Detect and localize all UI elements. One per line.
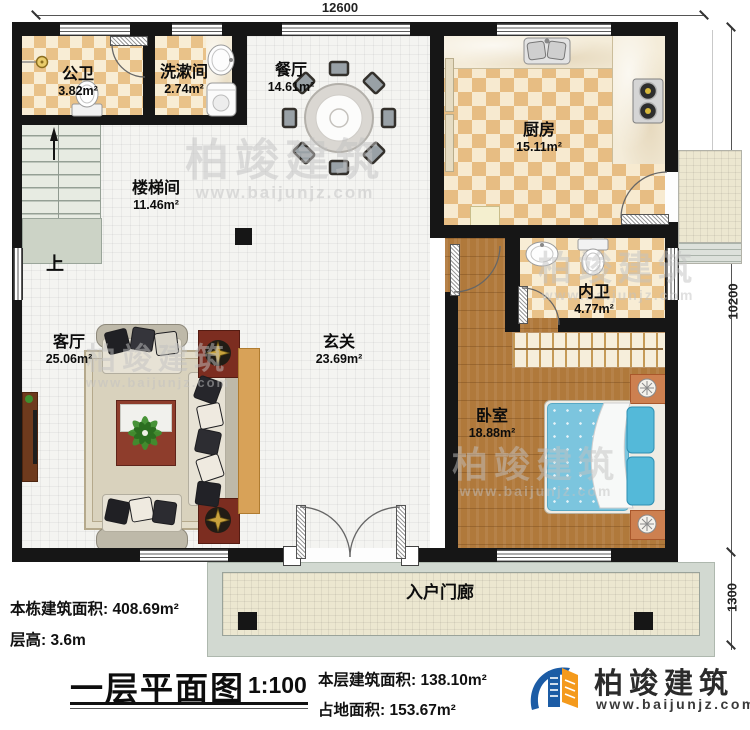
kitchen-door-leaf bbox=[621, 214, 669, 225]
side-steps bbox=[678, 242, 742, 264]
kitchen-tall-unit bbox=[445, 114, 454, 172]
window bbox=[666, 248, 679, 300]
ensuite-door-leaf bbox=[518, 286, 528, 324]
window bbox=[13, 248, 23, 300]
stair-stringer bbox=[58, 122, 59, 218]
drawing-scale: 1:100 bbox=[248, 672, 307, 699]
wall-segment bbox=[430, 36, 444, 238]
nightstand-top bbox=[630, 374, 666, 404]
structural-column bbox=[235, 228, 252, 245]
room-label-porch: 入户门廊 bbox=[392, 583, 488, 603]
porch-column bbox=[634, 612, 653, 630]
window bbox=[60, 23, 130, 36]
dim-line-right bbox=[731, 28, 732, 650]
site-boundary-line bbox=[712, 30, 713, 150]
side-table-top bbox=[198, 330, 240, 378]
window bbox=[497, 549, 611, 562]
wall-segment bbox=[665, 22, 678, 172]
porch-floor bbox=[222, 572, 700, 636]
entry-door-leaf bbox=[296, 505, 306, 559]
company-logo-icon bbox=[526, 658, 590, 718]
wall-segment bbox=[12, 115, 247, 125]
coffee-table-glass bbox=[120, 404, 172, 432]
company-website: www.baijunjz.com bbox=[596, 696, 750, 712]
window bbox=[282, 23, 410, 36]
wall-segment bbox=[232, 36, 247, 125]
nightstand-bottom bbox=[630, 510, 666, 540]
floor-area: 本层建筑面积: 138.10m² bbox=[318, 668, 487, 690]
dim-height-right: 10200 bbox=[726, 275, 741, 329]
staircase bbox=[22, 122, 101, 218]
side-platform bbox=[678, 150, 742, 244]
title-underline-thin bbox=[70, 708, 308, 709]
room-label-xuanguan: 玄关23.69m² bbox=[304, 334, 374, 367]
window bbox=[497, 23, 611, 36]
logo-building bbox=[562, 668, 578, 708]
footprint-area: 占地面积: 153.67m² bbox=[318, 698, 456, 720]
logo-tower bbox=[548, 671, 560, 707]
room-label-loutijian: 楼梯间11.46m² bbox=[117, 180, 195, 213]
floor-height: 层高: 3.6m bbox=[10, 628, 86, 650]
bedroom-door-leaf bbox=[450, 244, 460, 296]
floor-plan-page: 12600 10200 1300 bbox=[0, 0, 750, 730]
dim-porch-depth: 1300 bbox=[725, 576, 740, 620]
title-underline-thick bbox=[70, 702, 308, 705]
room-label-canting: 餐厅14.61m² bbox=[256, 62, 326, 95]
wall-segment bbox=[558, 318, 665, 332]
porch-column bbox=[238, 612, 257, 630]
room-label-gongwei: 公卫3.82m² bbox=[47, 66, 109, 99]
room-label-woshi: 卧室18.88m² bbox=[460, 408, 524, 441]
kitchen-counter-top bbox=[444, 36, 612, 69]
dim-width-top: 12600 bbox=[310, 0, 370, 15]
wall-segment bbox=[430, 225, 678, 238]
stair-up-label: 上 bbox=[42, 254, 68, 275]
dim-line-top bbox=[35, 15, 706, 16]
bed-mattress bbox=[547, 403, 629, 511]
bathroom-door-leaf bbox=[110, 36, 148, 46]
building-total-area: 本栋建筑面积: 408.69m² bbox=[10, 597, 179, 619]
tv-screen bbox=[33, 410, 37, 464]
kitchen-counter-right bbox=[612, 36, 666, 164]
entry-door-leaf bbox=[396, 505, 406, 559]
wardrobe-rail bbox=[514, 348, 663, 350]
company-logo: 柏竣建筑 www.baijunjz.com bbox=[526, 658, 740, 720]
sideboard bbox=[238, 348, 260, 514]
wall-segment bbox=[445, 292, 458, 548]
room-label-neiwei: 内卫4.77m² bbox=[562, 284, 626, 317]
room-label-keting: 客厅25.06m² bbox=[36, 334, 102, 367]
window bbox=[172, 23, 222, 36]
kitchen-tall-unit bbox=[445, 58, 454, 112]
room-label-xishujian: 洗漱间2.74m² bbox=[150, 64, 218, 97]
window bbox=[140, 549, 228, 562]
wardrobe bbox=[512, 332, 667, 368]
room-label-chufang: 厨房15.11m² bbox=[503, 122, 575, 155]
